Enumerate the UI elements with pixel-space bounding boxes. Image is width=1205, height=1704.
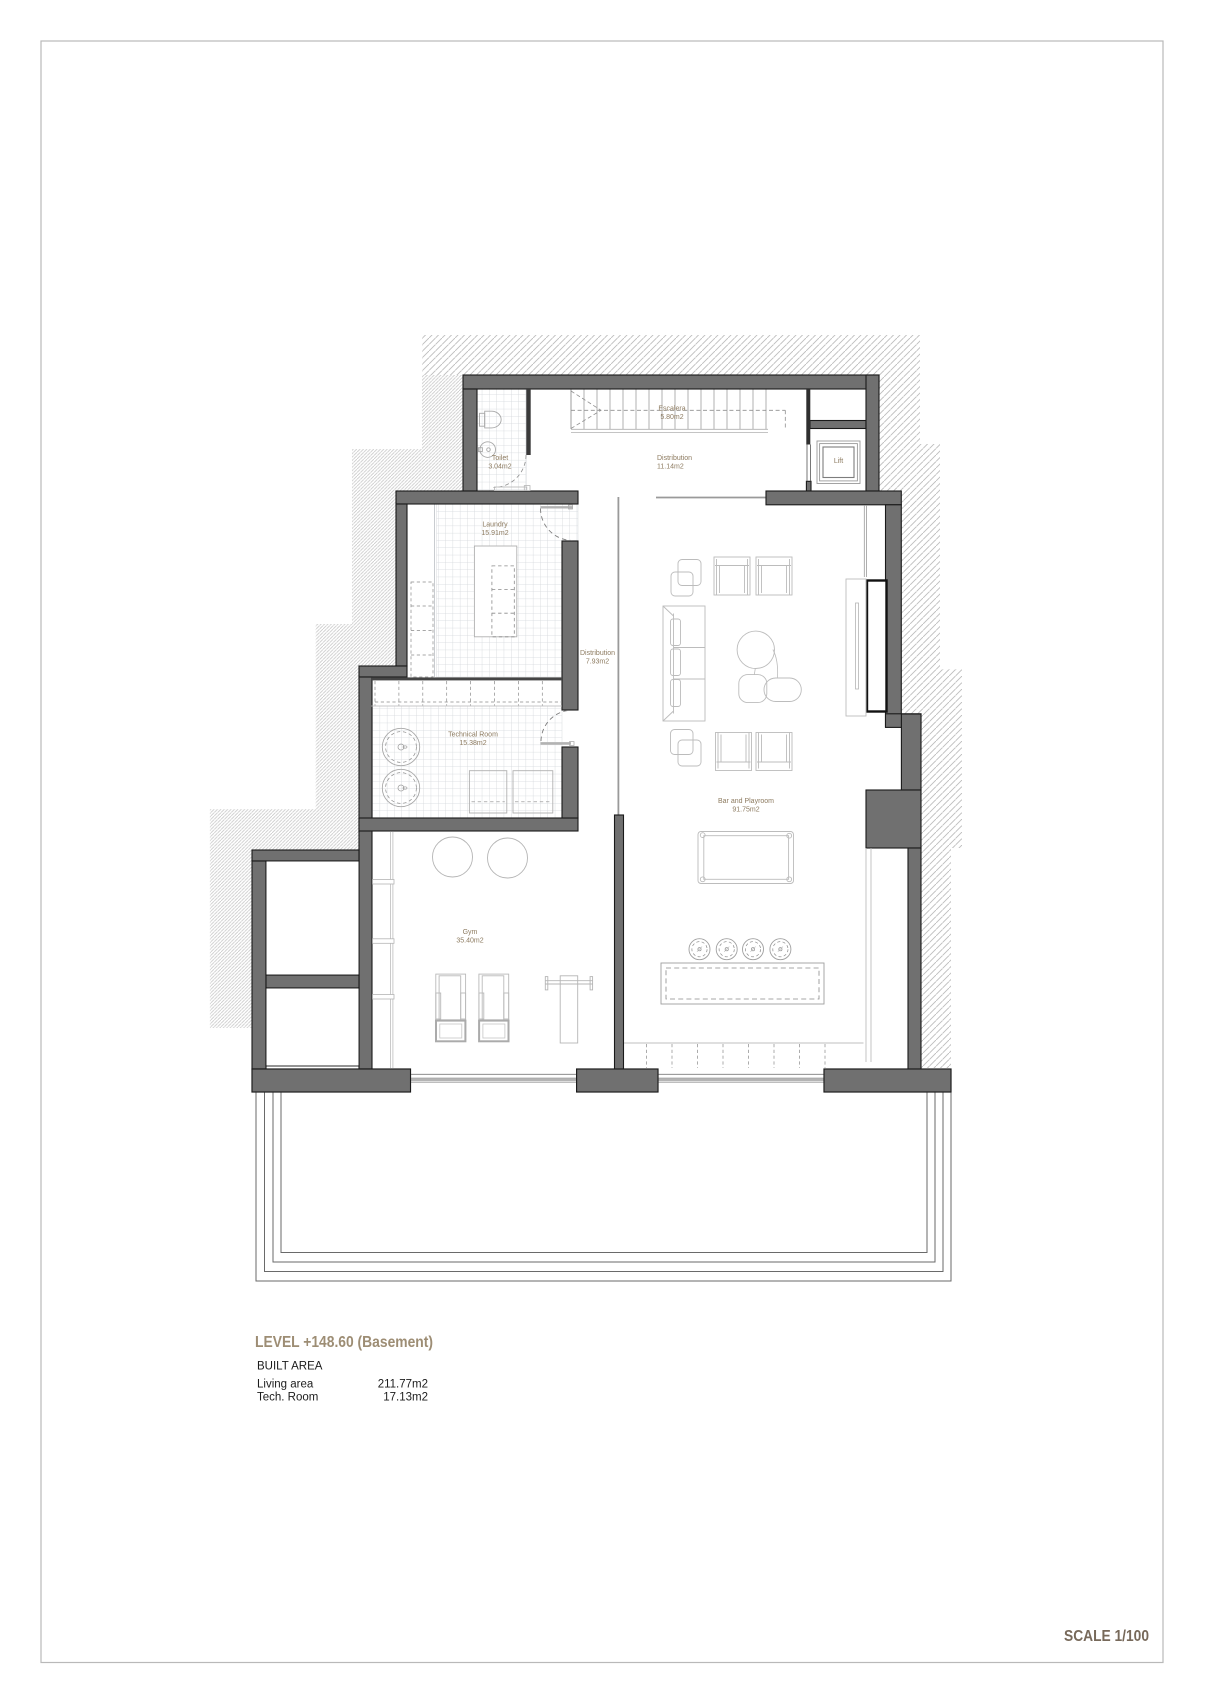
svg-text:Laundry15.91m2: Laundry15.91m2 xyxy=(481,521,508,537)
svg-text:17.13m2: 17.13m2 xyxy=(383,1392,428,1404)
svg-text:Tech. Room: Tech. Room xyxy=(257,1392,318,1404)
svg-text:SCALE 1/100: SCALE 1/100 xyxy=(1064,1628,1149,1645)
svg-text:LEVEL +148.60 (Basement): LEVEL +148.60 (Basement) xyxy=(255,1334,433,1351)
svg-text:BUILT AREA: BUILT AREA xyxy=(257,1361,323,1373)
svg-text:Living area: Living area xyxy=(257,1379,314,1391)
svg-text:211.77m2: 211.77m2 xyxy=(378,1379,428,1391)
svg-text:Escalera5.80m2: Escalera5.80m2 xyxy=(658,405,685,421)
svg-text:Lift: Lift xyxy=(834,458,843,465)
